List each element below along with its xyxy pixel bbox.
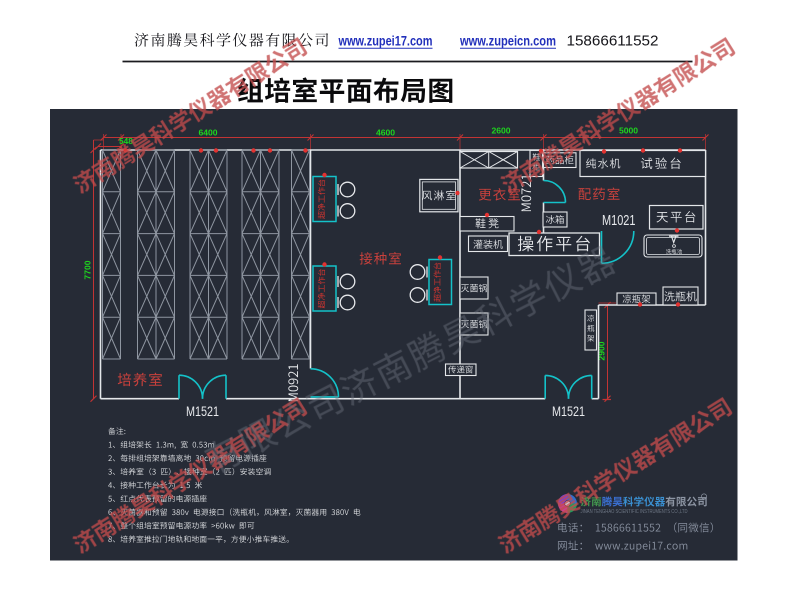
svg-text:5000: 5000 [619, 126, 638, 136]
svg-text:15866611552: 15866611552 [567, 34, 659, 50]
svg-text:JINAN TENGHAO SCIENTIFIC INSTR: JINAN TENGHAO SCIENTIFIC INSTRUMENTS CO.… [581, 509, 688, 515]
svg-text:6400: 6400 [198, 128, 217, 138]
svg-text:M1021: M1021 [602, 213, 636, 229]
svg-text:www.zupei17.com: www.zupei17.com [338, 33, 433, 49]
svg-text:7700: 7700 [83, 260, 93, 279]
svg-text:www.zupeicn.com: www.zupeicn.com [459, 33, 556, 49]
svg-text:M1521: M1521 [552, 404, 585, 420]
svg-text:4600: 4600 [376, 128, 395, 138]
svg-text:2600: 2600 [491, 126, 510, 136]
svg-text:M1521: M1521 [186, 404, 219, 420]
